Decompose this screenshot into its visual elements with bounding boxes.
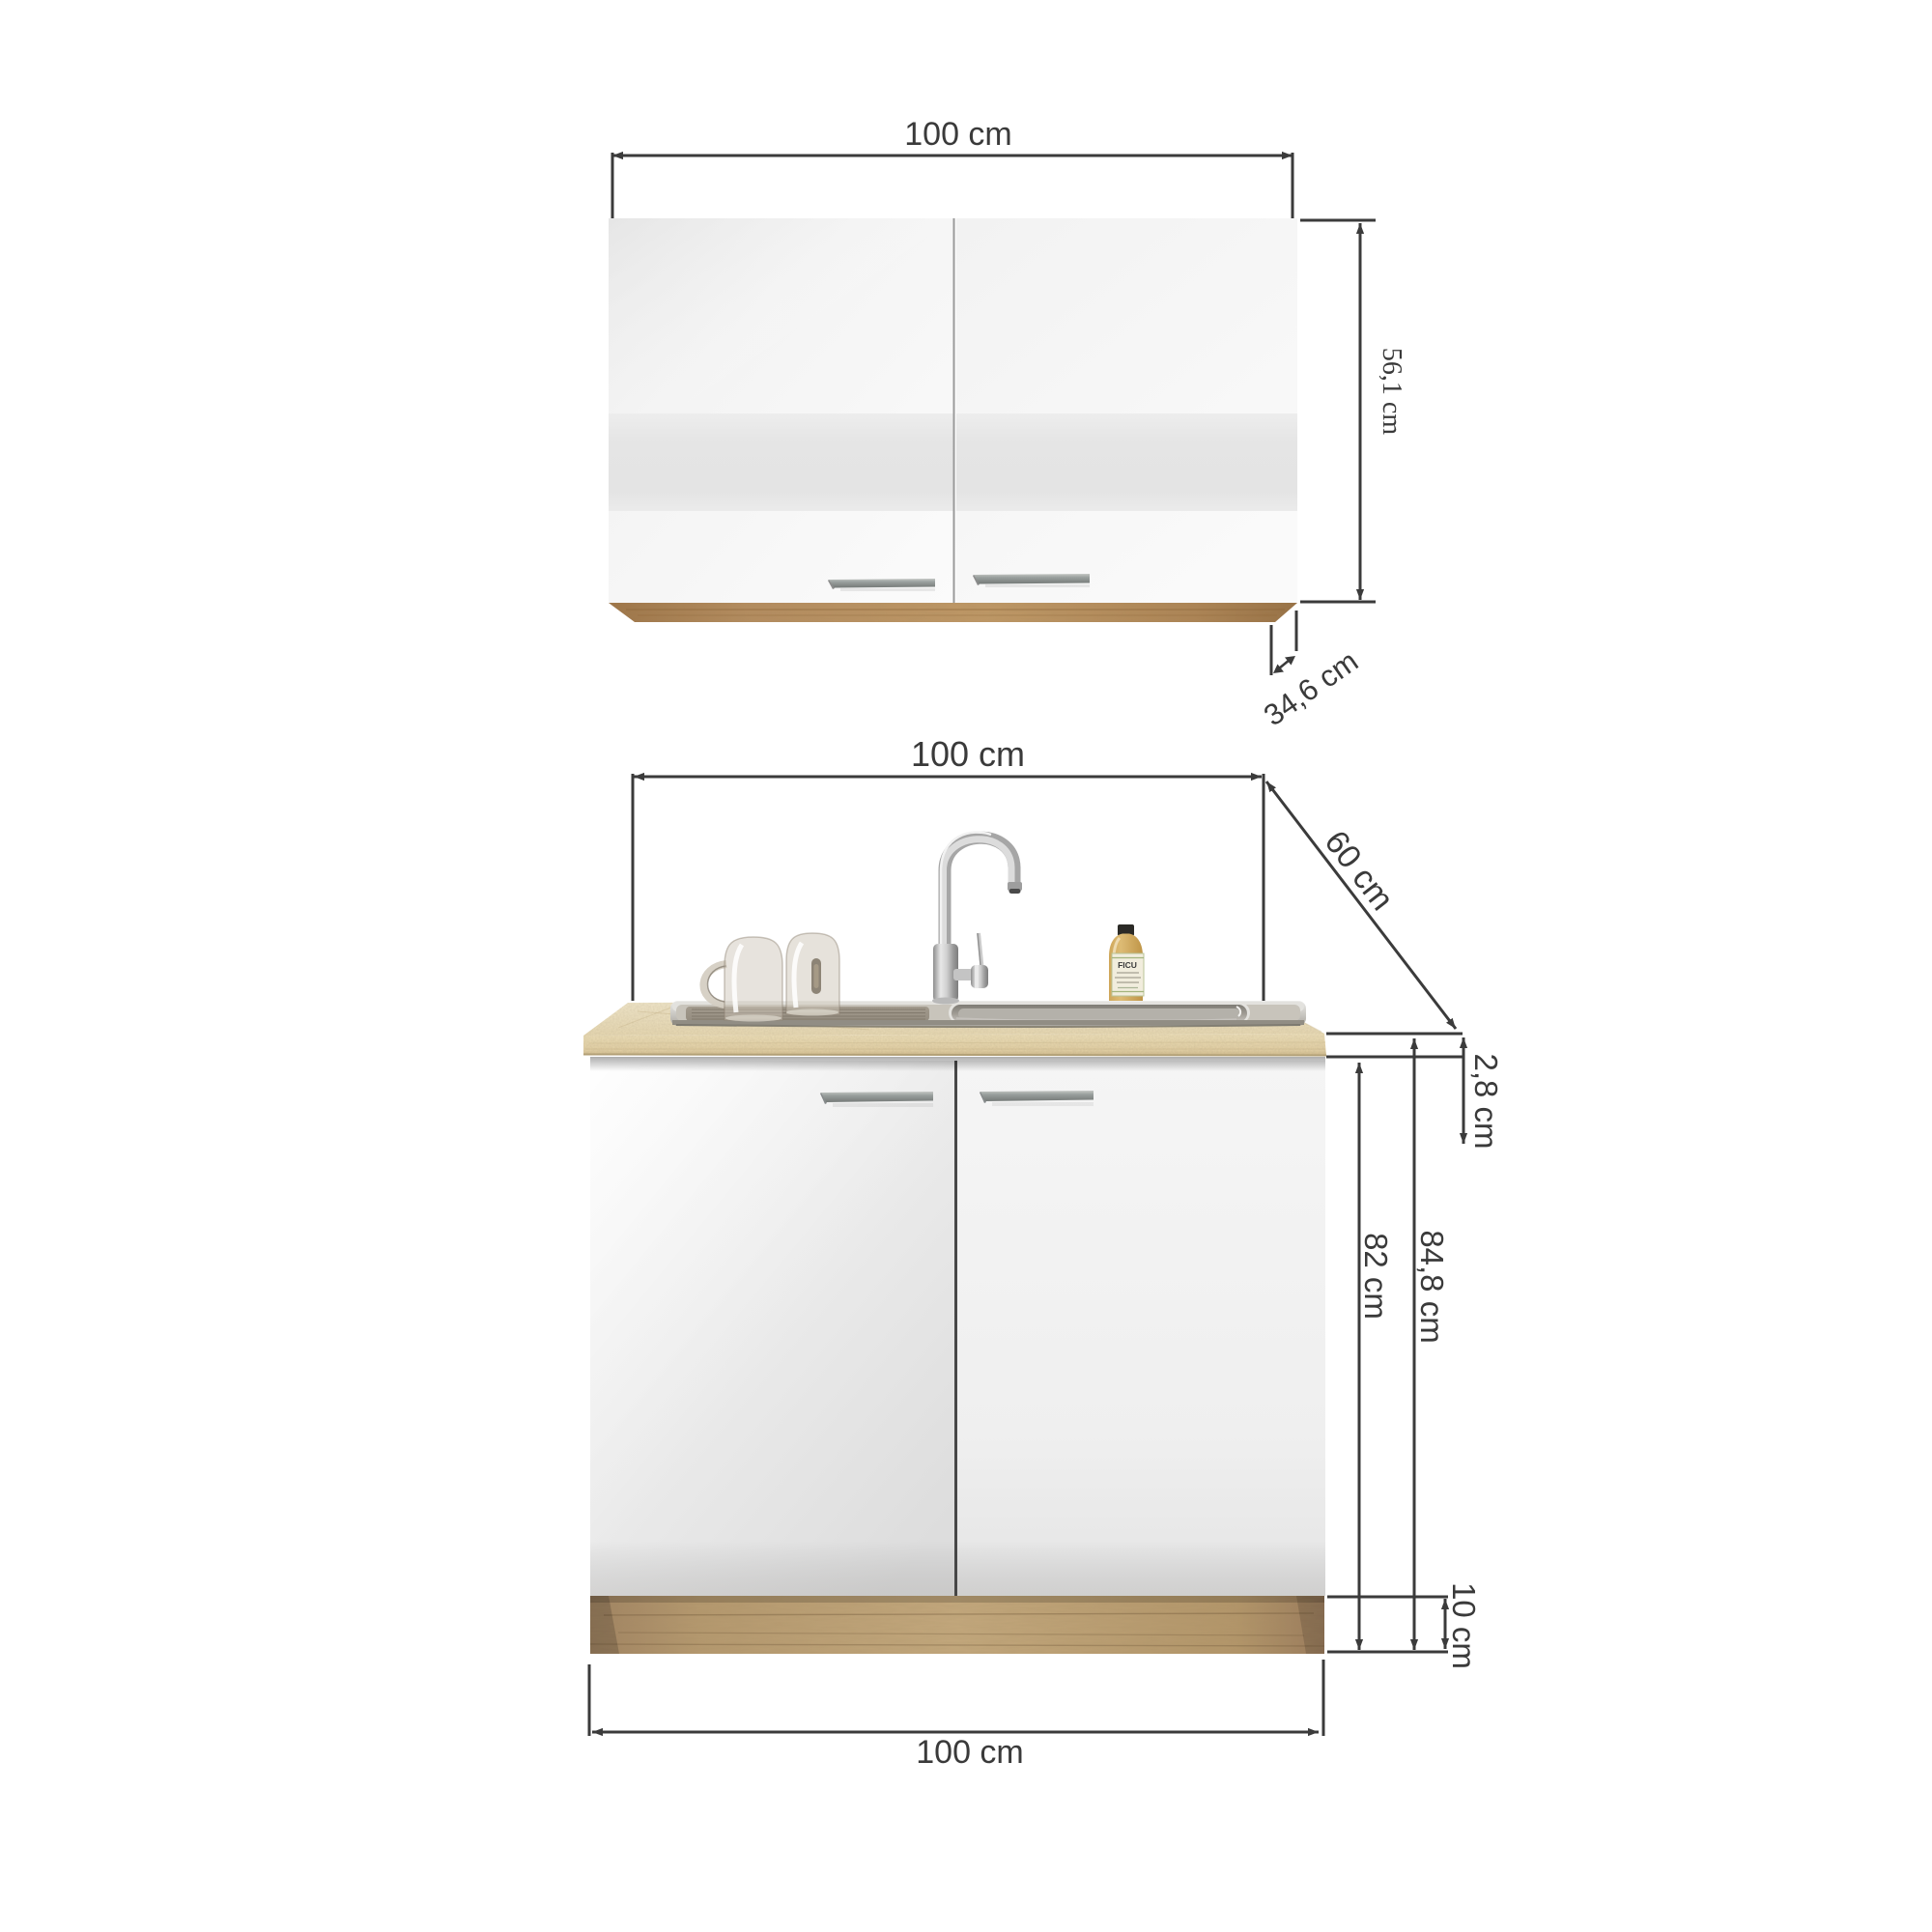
svg-text:100 cm: 100 cm (911, 734, 1025, 774)
svg-text:100 cm: 100 cm (916, 1734, 1024, 1771)
svg-text:84,8 cm: 84,8 cm (1414, 1230, 1450, 1343)
svg-text:100 cm: 100 cm (904, 116, 1012, 153)
svg-text:10 cm: 10 cm (1446, 1582, 1482, 1669)
svg-text:82 cm: 82 cm (1358, 1233, 1394, 1320)
svg-text:FICU: FICU (1118, 960, 1137, 970)
svg-text:56,1 cm: 56,1 cm (1377, 348, 1406, 435)
svg-text:2,8 cm: 2,8 cm (1468, 1053, 1504, 1149)
svg-text:34,6 cm: 34,6 cm (1258, 643, 1364, 732)
